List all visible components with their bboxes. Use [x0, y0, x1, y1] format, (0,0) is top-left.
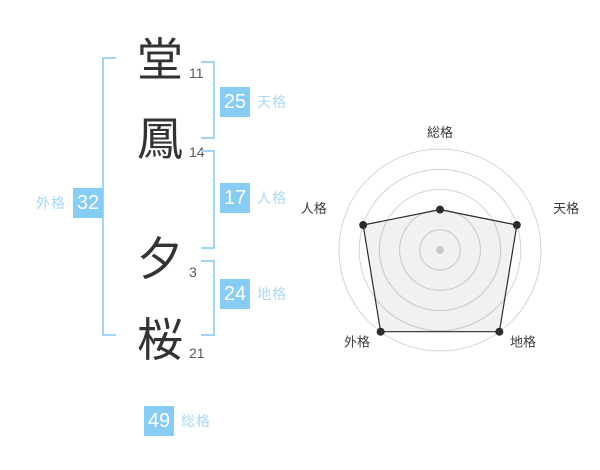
radar-polygon: [363, 210, 517, 332]
jinkaku-badge: 17 人格: [220, 183, 287, 213]
radar-axis-label: 地格: [510, 334, 536, 349]
tenkaku-label: 天格: [257, 92, 287, 112]
soukaku-badge: 49 総格: [144, 406, 211, 436]
kanji-char: 夕: [137, 236, 183, 282]
radar-vertex-dot: [513, 221, 521, 229]
chikaku-badge: 24 地格: [220, 279, 287, 309]
chikaku-bracket: [201, 260, 215, 336]
radar-axis-label: 総格: [427, 125, 453, 140]
stroke-count: 3: [189, 265, 197, 282]
radar-ring: [359, 169, 521, 331]
radar-vertex-dot: [436, 206, 444, 214]
soukaku-value: 49: [144, 406, 174, 436]
kanji-char: 桜: [137, 317, 183, 363]
kanji-char: 鳳: [137, 116, 183, 162]
name-char-row: 夕 3: [137, 236, 197, 282]
radar-axis-label: 天格: [553, 201, 579, 216]
radar-vertex-dot: [377, 328, 385, 336]
kanji-char: 堂: [137, 37, 183, 83]
radar-vertex-dot: [495, 328, 503, 336]
radar-ring: [339, 149, 541, 351]
soukaku-label: 総格: [181, 411, 211, 431]
radar-center-dot: [436, 246, 444, 254]
tenkaku-value: 25: [220, 87, 250, 117]
jinkaku-label: 人格: [257, 188, 287, 208]
gaikaku-label: 外格: [36, 193, 66, 213]
name-char-row: 堂 11: [137, 37, 204, 83]
name-char-row: 鳳 14: [137, 116, 205, 162]
gaikaku-bracket: [102, 57, 116, 336]
radar-ring: [379, 189, 500, 310]
chikaku-label: 地格: [257, 284, 287, 304]
tenkaku-badge: 25 天格: [220, 87, 287, 117]
jinkaku-value: 17: [220, 183, 250, 213]
chikaku-value: 24: [220, 279, 250, 309]
radar-vertex-dot: [359, 221, 367, 229]
name-char-row: 桜 21: [137, 317, 205, 363]
radar-ring: [400, 210, 481, 291]
radar-ring: [420, 230, 460, 270]
name-fortune-panel: 堂 11 鳳 14 夕 3 桜 21 25 天格 17 人格 24 地格 外格 …: [0, 0, 600, 470]
gaikaku-badge: 外格 32: [36, 188, 103, 218]
stroke-count: 21: [189, 346, 205, 363]
gaikaku-value: 32: [73, 188, 103, 218]
radar-chart: 総格天格地格外格人格: [0, 0, 600, 470]
jinkaku-bracket: [201, 150, 215, 249]
radar-axis-label: 人格: [301, 201, 327, 216]
radar-axis-label: 外格: [344, 334, 370, 349]
tenkaku-bracket: [201, 61, 215, 139]
